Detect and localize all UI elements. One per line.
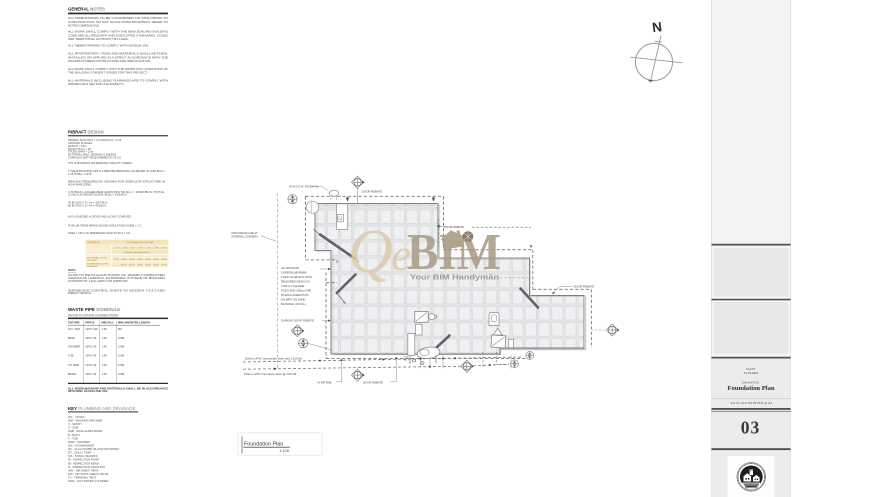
svg-text:COMPLIES WITH REQUIREMENTS OF: COMPLIES WITH REQUIREMENTS OF 3.0 xyxy=(68,155,121,159)
svg-text:100mm uPVC stormwater drain wi: 100mm uPVC stormwater drain with 1:120 f… xyxy=(245,356,302,360)
svg-text:15.04.2022: 15.04.2022 xyxy=(744,371,759,375)
svg-text:HWC - HOT WATER CYLINDER: HWC - HOT WATER CYLINDER xyxy=(68,479,109,483)
svg-text:1:40: 1:40 xyxy=(102,372,108,376)
svg-text:FIXTURE: FIXTURE xyxy=(68,321,80,325)
svg-text:BASIN: BASIN xyxy=(68,372,76,376)
svg-text:THICK SLAB RAIL WITH: THICK SLAB RAIL WITH xyxy=(281,275,312,279)
svg-text:BLINDING (IN FILL): BLINDING (IN FILL) xyxy=(281,302,306,306)
svg-text:NOTED DIMENSIONS.: NOTED DIMENSIONS. xyxy=(68,24,100,28)
svg-text:3.5M: 3.5M xyxy=(118,336,125,340)
svg-text:SHOWER: SHOWER xyxy=(68,345,80,349)
svg-text:GARAGE DOOR REBATE: GARAGE DOOR REBATE xyxy=(281,319,314,323)
svg-text:ON MPS ON SAND: ON MPS ON SAND xyxy=(281,297,306,301)
svg-text:BATH: BATH xyxy=(68,336,75,340)
svg-text:DOOR REBATE: DOOR REBATE xyxy=(362,189,382,193)
svg-text:WASTE PIPE SCHEDULE: WASTE PIPE SCHEDULE xyxy=(68,307,120,312)
svg-text:IN CONTACT WITH: IN CONTACT WITH xyxy=(87,257,107,260)
svg-text:DOOR REBATE: DOOR REBATE xyxy=(574,285,594,289)
svg-text:BU'S ACHIEVED ACROSS AND ALONG: BU'S ACHIEVED ACROSS AND ALONG COMPLIES xyxy=(68,214,131,218)
svg-text:RIBRAFT DESIGN: RIBRAFT DESIGN xyxy=(68,130,104,135)
svg-text:INTERNAL CORNERS: INTERNAL CORNERS xyxy=(232,234,259,238)
svg-text:MANUFACTURERS INSTRUCTIONS AND: MANUFACTURERS INSTRUCTIONS AND SPECIFICA… xyxy=(68,59,151,63)
svg-text:uPVC 100: uPVC 100 xyxy=(86,327,99,331)
svg-text:uPVC 40: uPVC 40 xyxy=(86,363,97,367)
svg-text:N: N xyxy=(651,19,663,35)
svg-text:1.35 (700U) = 2178: 1.35 (700U) = 2178 xyxy=(68,172,92,176)
svg-text:— 50 40 35 30 30: — 50 40 35 30 30 25 xyxy=(113,264,169,266)
svg-text:1:40: 1:40 xyxy=(102,345,108,349)
svg-text:DRAWING: DRAWING xyxy=(742,380,760,384)
svg-text:CONCRETE: CONCRETE xyxy=(87,242,100,244)
svg-text:(4 WP RIB): (4 WP RIB) xyxy=(318,380,332,384)
svg-text:KIT SINK: KIT SINK xyxy=(68,363,79,367)
svg-text:75 60 50 45 40 40: 75 60 50 45 40 40 40 xyxy=(113,259,169,261)
svg-text:1:40: 1:40 xyxy=(102,363,108,367)
svg-text:SURFACE: SURFACE xyxy=(87,265,98,268)
svg-text:MIN FALL: MIN FALL xyxy=(102,321,115,325)
svg-text:ALL300 RIGID: ALL300 RIGID xyxy=(281,266,299,270)
svg-text:DOOR REBATE: DOOR REBATE xyxy=(363,380,383,384)
svg-text:1:100: 1:100 xyxy=(279,448,290,453)
svg-text:03: 03 xyxy=(741,418,761,438)
svg-text:1:40: 1:40 xyxy=(102,336,108,340)
svg-text:Your BIM Handymān: Your BIM Handymān xyxy=(410,272,499,281)
svg-text:uPVC 40: uPVC 40 xyxy=(86,336,97,340)
svg-text:(DOOR TO WASTE CONNECTIONS): (DOOR TO WASTE CONNECTIONS) xyxy=(68,313,118,317)
svg-text:REQUIRED MESH ON: REQUIRED MESH ON xyxy=(281,279,310,283)
svg-text:Concrete Strength Grades: Concrete Strength Grades xyxy=(124,251,150,254)
svg-text:1:60: 1:60 xyxy=(102,327,108,331)
svg-text:1.5 BU/m ACHIEVED ALONG 48.8m: 1.5 BU/m ACHIEVED ALONG 48.8m = 1630 BU'… xyxy=(68,193,128,197)
svg-text:KEY PLUMBING AND DRAINAGE: KEY PLUMBING AND DRAINAGE xyxy=(68,406,136,411)
svg-text:3.5M: 3.5M xyxy=(118,372,125,376)
svg-text:c20 c25 c30 c35 c40 c45: c20 c25 c30 c35 c40 c45 c50 xyxy=(113,248,168,250)
svg-text:TPS IS BUILDING 300 BEARING CA: TPS IS BUILDING 300 BEARING CAPACITY 300… xyxy=(68,161,132,165)
svg-text:PODS AND 100mm RIB: PODS AND 100mm RIB xyxy=(281,288,311,292)
svg-text:1:40: 1:40 xyxy=(102,353,108,357)
svg-text:FOOTPRINT BY 1 [FILL DEPTH] OR: FOOTPRINT BY 1 [FILL DEPTH] OR 250MM MIN xyxy=(68,279,128,283)
svg-text:uPVC 40: uPVC 40 xyxy=(86,353,97,357)
svg-text:3.5M: 3.5M xyxy=(118,345,125,349)
svg-text:Q: Q xyxy=(348,218,393,286)
svg-text:TO SCALE PRINTED @ A3: TO SCALE PRINTED @ A3 xyxy=(731,401,773,405)
svg-text:1100mm SQUARE: 1100mm SQUARE xyxy=(281,284,304,288)
svg-text:3.5M: 3.5M xyxy=(118,363,125,367)
svg-text:RIBRAFT MANUAL: RIBRAFT MANUAL xyxy=(68,291,92,295)
svg-text:THE BUILDING CONSENT ISSUED FO: THE BUILDING CONSENT ISSUED FOR THIS PRO… xyxy=(68,71,148,75)
svg-text:Foundation Plan: Foundation Plan xyxy=(727,385,774,392)
svg-text:TUB: TUB xyxy=(68,353,74,357)
svg-text:EXTERIOR A2 ZONE: EXTERIOR A2 ZONE xyxy=(87,262,109,265)
svg-text:SUPERSLAB 85MM: SUPERSLAB 85MM xyxy=(281,270,307,274)
svg-text:HIGH WIND ZONE:: HIGH WIND ZONE: xyxy=(68,182,92,186)
svg-text:BOUNDARY/COVER (MM): BOUNDARY/COVER (MM) xyxy=(127,241,154,244)
svg-text:85 BU'S/20 X 12.4m = 976 BU's: 85 BU'S/20 X 12.4m = 976 BU's xyxy=(68,203,107,207)
svg-text:AREA = 156 (m2) PERIMETER LENG: AREA = 156 (m2) PERIMETER LENGTH 56.3 = … xyxy=(68,231,130,235)
svg-text:3.5M: 3.5M xyxy=(118,353,125,357)
svg-text:NZS3604:2011 SECTION 4 DURABIL: NZS3604:2011 SECTION 4 DURABILITY. xyxy=(68,82,125,86)
svg-text:R-VALUE FROM BRANZ HOUSE INSUL: R-VALUE FROM BRANZ HOUSE INSULATION GUID… xyxy=(68,223,142,227)
svg-text:AND TERRITORIAL AUTHORITY BY-L: AND TERRITORIAL AUTHORITY BY-LAWS. xyxy=(68,37,129,41)
svg-text:GENERAL NOTES: GENERAL NOTES xyxy=(68,7,105,12)
svg-text:uPVC 32: uPVC 32 xyxy=(86,372,97,376)
svg-text:IN EACH DIRECTION: IN EACH DIRECTION xyxy=(281,293,309,297)
svg-text:uPVC 40: uPVC 40 xyxy=(86,345,97,349)
svg-text:W.C. PAN: W.C. PAN xyxy=(68,327,80,331)
svg-text:MIN UNVENTED LENGTH: MIN UNVENTED LENGTH xyxy=(118,321,150,325)
svg-text:WITH NZBC G13/AS1 AND AS2.: WITH NZBC G13/AS1 AND AS2. xyxy=(68,389,108,393)
svg-text:PIPE Ø: PIPE Ø xyxy=(86,321,95,325)
svg-text:ALL TIMBER FRAMING TO COMPLY W: ALL TIMBER FRAMING TO COMPLY WITH NZS360… xyxy=(68,44,149,48)
svg-text:NOTE:: NOTE: xyxy=(68,268,76,272)
svg-text:100mm uPVC foul sewer drain @: 100mm uPVC foul sewer drain @ 1:60 fall xyxy=(244,372,296,376)
svg-text:Foundation Plan: Foundation Plan xyxy=(244,442,283,448)
